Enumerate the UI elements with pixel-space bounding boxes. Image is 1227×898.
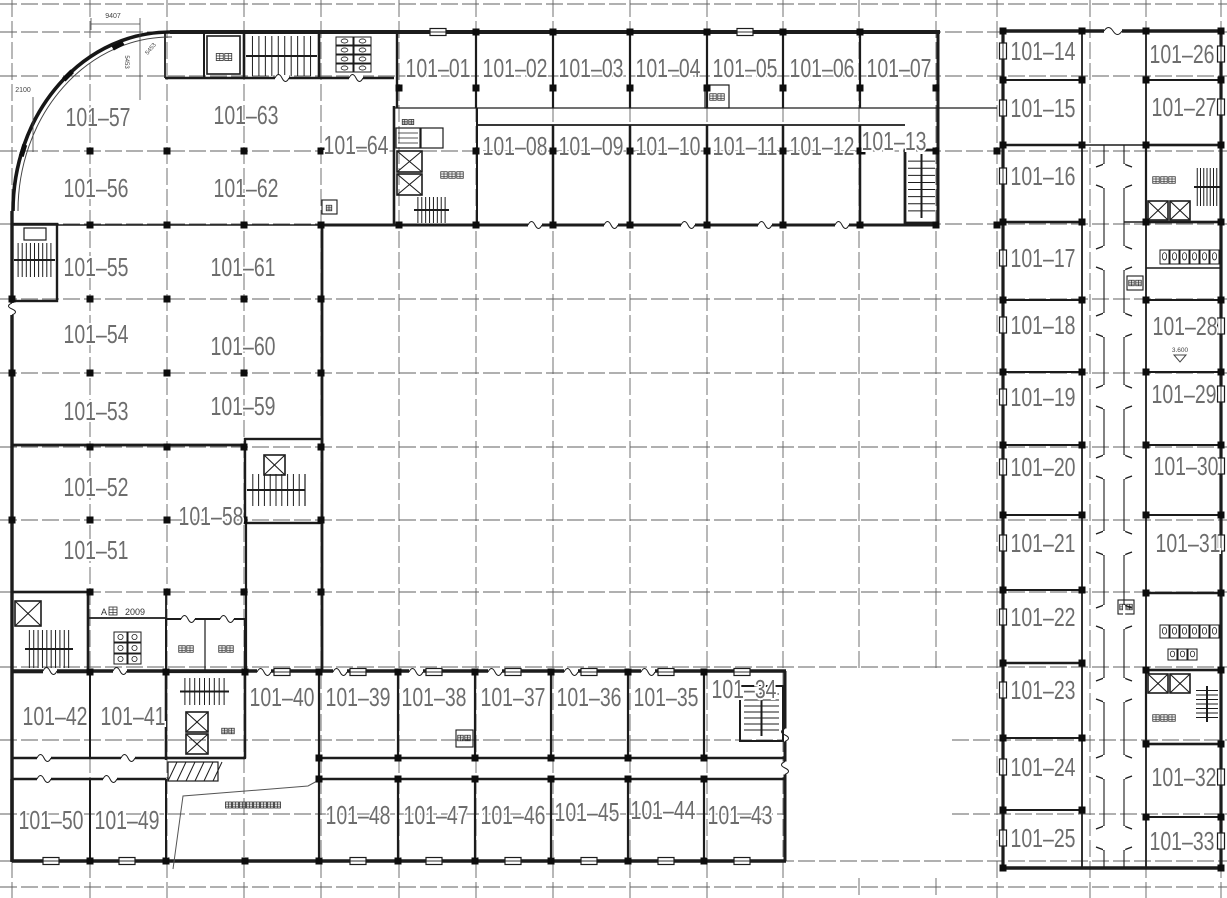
- svg-text:101–01: 101–01: [406, 55, 471, 83]
- svg-text:101–20: 101–20: [1011, 454, 1076, 482]
- svg-text:101–29: 101–29: [1152, 381, 1217, 409]
- svg-text:101–40: 101–40: [250, 684, 315, 712]
- svg-text:101–57: 101–57: [66, 104, 131, 132]
- svg-text:101–02: 101–02: [483, 55, 548, 83]
- svg-text:101–26: 101–26: [1150, 41, 1215, 69]
- svg-text:101–14: 101–14: [1011, 38, 1076, 66]
- svg-text:9407: 9407: [105, 13, 121, 20]
- svg-text:101–51: 101–51: [64, 537, 129, 565]
- svg-text:101–27: 101–27: [1152, 94, 1217, 122]
- svg-text:101–46: 101–46: [481, 802, 546, 830]
- svg-text:101–17: 101–17: [1011, 245, 1076, 273]
- svg-text:101–04: 101–04: [636, 55, 701, 83]
- svg-text:101–42: 101–42: [23, 703, 88, 731]
- svg-text:3.600: 3.600: [1172, 347, 1189, 354]
- svg-text:101–44: 101–44: [631, 797, 696, 825]
- svg-text:101–54: 101–54: [64, 321, 129, 349]
- svg-text:101–03: 101–03: [559, 55, 624, 83]
- svg-text:101–10: 101–10: [636, 133, 701, 161]
- svg-text:101–35: 101–35: [634, 684, 699, 712]
- svg-text:101–13: 101–13: [862, 128, 927, 156]
- svg-text:101–61: 101–61: [211, 254, 276, 282]
- svg-text:101–06: 101–06: [790, 55, 855, 83]
- svg-text:101–48: 101–48: [326, 802, 391, 830]
- svg-text:101–28: 101–28: [1153, 313, 1218, 341]
- svg-text:101–58: 101–58: [179, 503, 244, 531]
- svg-text:101–23: 101–23: [1011, 677, 1076, 705]
- svg-text:101–09: 101–09: [559, 133, 624, 161]
- svg-text:101–43: 101–43: [708, 802, 773, 830]
- svg-text:101–21: 101–21: [1011, 530, 1076, 558]
- svg-text:101–41: 101–41: [101, 703, 166, 731]
- svg-text:101–08: 101–08: [483, 133, 548, 161]
- svg-text:101–53: 101–53: [64, 398, 129, 426]
- svg-text:101–52: 101–52: [64, 474, 129, 502]
- svg-text:101–22: 101–22: [1011, 604, 1076, 632]
- svg-text:101–12: 101–12: [790, 133, 855, 161]
- svg-text:101–63: 101–63: [214, 102, 279, 130]
- svg-text:5453: 5453: [123, 55, 129, 69]
- svg-text:101–50: 101–50: [19, 807, 84, 835]
- svg-text:101–11: 101–11: [713, 133, 778, 161]
- svg-text:101–15: 101–15: [1011, 95, 1076, 123]
- svg-text:101–59: 101–59: [211, 393, 276, 421]
- svg-text:101–33: 101–33: [1150, 828, 1215, 856]
- svg-text:101–32: 101–32: [1152, 764, 1217, 792]
- svg-text:101–30: 101–30: [1154, 453, 1219, 481]
- svg-text:101–18: 101–18: [1011, 312, 1076, 340]
- svg-text:101–24: 101–24: [1011, 754, 1076, 782]
- svg-text:101–56: 101–56: [64, 175, 129, 203]
- svg-text:101–49: 101–49: [95, 807, 160, 835]
- svg-text:101–38: 101–38: [402, 684, 467, 712]
- svg-text:101–34: 101–34: [712, 676, 777, 704]
- svg-text:101–60: 101–60: [211, 333, 276, 361]
- svg-text:101–47: 101–47: [404, 802, 469, 830]
- svg-text:2100: 2100: [15, 87, 31, 94]
- svg-text:101–62: 101–62: [214, 175, 279, 203]
- svg-text:101–36: 101–36: [557, 684, 622, 712]
- svg-text:2009: 2009: [125, 607, 145, 617]
- svg-text:A: A: [101, 607, 107, 617]
- svg-text:101–45: 101–45: [555, 799, 620, 827]
- svg-text:101–55: 101–55: [64, 254, 129, 282]
- svg-text:101–07: 101–07: [867, 55, 932, 83]
- svg-text:101–05: 101–05: [713, 55, 778, 83]
- svg-text:101–25: 101–25: [1011, 825, 1076, 853]
- svg-text:101–37: 101–37: [481, 684, 546, 712]
- svg-text:101–39: 101–39: [326, 684, 391, 712]
- svg-text:101–31: 101–31: [1156, 530, 1221, 558]
- svg-text:101–16: 101–16: [1011, 163, 1076, 191]
- svg-text:101–64: 101–64: [324, 132, 389, 160]
- svg-text:101–19: 101–19: [1011, 384, 1076, 412]
